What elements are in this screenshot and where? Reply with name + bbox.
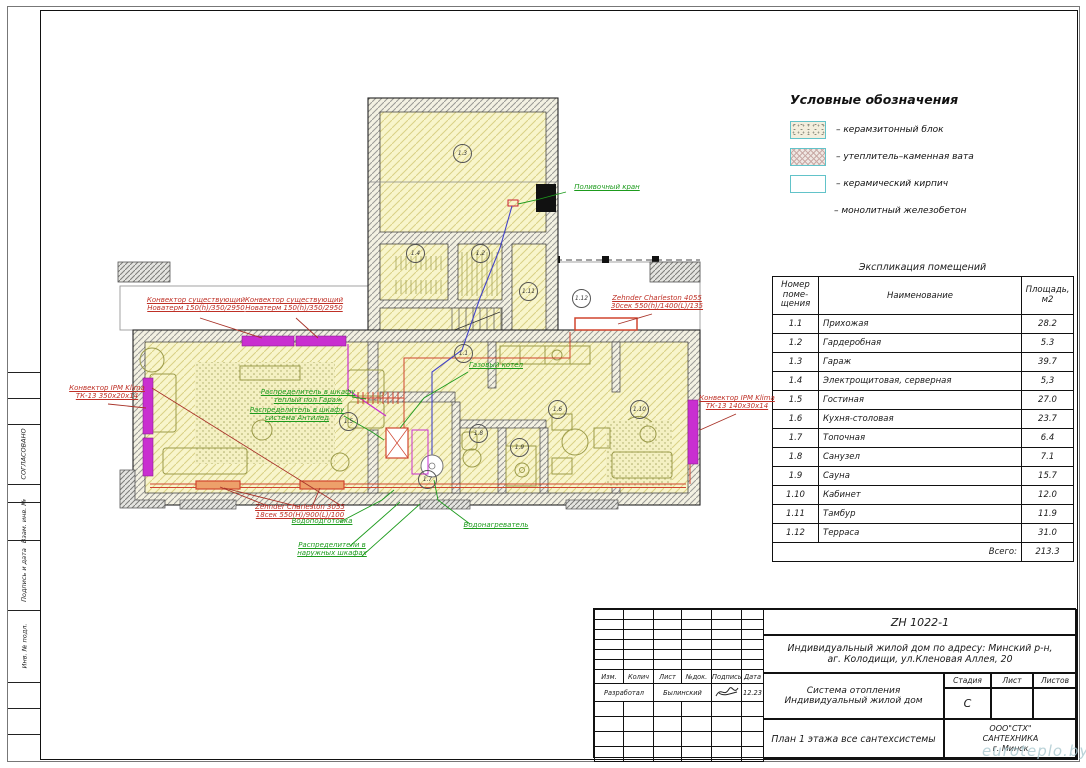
company-line1: ООО"СТХ" [989, 724, 1031, 734]
window-sill [118, 262, 170, 282]
strip-divider [8, 484, 40, 485]
total-value: 213.3 [1022, 543, 1074, 562]
annotation-manifold-antiled: Распределитель в шкафу система Антилед [248, 406, 346, 423]
address-line2: аг. Колодищи, ул.Кленовая Аллея, 20 [827, 654, 1012, 665]
approved-stamp: СОГЛАСОВАНО [8, 424, 40, 484]
date-value: 12.23 [742, 684, 764, 702]
watermark: euroteplo.by [982, 742, 1086, 760]
explication-grid: Номер поме- щения Наименование Площадь, … [772, 276, 1074, 562]
inv-cell: Инв. № подл. [8, 610, 40, 682]
system-name: Система отопления Индивидуальный жилой д… [763, 673, 944, 719]
table-row: 1.4Электрощитовая, серверная5,3 [773, 372, 1074, 391]
room-circle-1-11: 1.11 [519, 282, 538, 301]
legend-item-kirpich: – керамический кирпич [790, 175, 1070, 193]
annotation-convector-existing-1: Конвектор существующий Новатерм 150(h)/3… [146, 296, 246, 313]
annotation-hose-bib: Поливочный кран [564, 183, 650, 191]
col-header-area: Площадь, м2 [1022, 277, 1074, 315]
annotation-manifold-garage: Распределитель в шкафу теплый пол Гараж [260, 388, 356, 405]
room-circle-1-3: 1.3 [453, 144, 472, 163]
strip-divider [8, 682, 40, 683]
legend-item-zhelezobeton: – монолитный железобетон [790, 202, 1070, 220]
podpis-label: Подпись и дата [20, 548, 28, 602]
developer-row: Разработал Былинский 12.23 [595, 684, 764, 702]
room-circle-1-8: 1.8 [469, 424, 488, 443]
room-circle-1-9: 1.9 [510, 438, 529, 457]
legend-label: – утеплитель–каменная вата [836, 152, 974, 162]
annotation-water-treatment: Водоподготовка [280, 517, 364, 525]
title-block-revision-grid: Изм. Колич Лист №док. Подпись Дата Разра… [594, 609, 764, 762]
table-row: 1.11Тамбур11.9 [773, 505, 1074, 524]
stage-value: С [944, 688, 991, 719]
keramzit-swatch [790, 121, 826, 139]
legend-label: – монолитный железобетон [834, 206, 967, 216]
title-block: Изм. Колич Лист №док. Подпись Дата Разра… [593, 608, 1076, 758]
annotation-convector-ipm-left: Конвектор IPM Klima ТК-13 350х20х14 [58, 384, 156, 401]
annotation-convector-existing-2: Конвектор существующий Новатерм 150(h)/3… [244, 296, 344, 313]
table-row: 1.1Прихожая28.2 [773, 315, 1074, 334]
sheet-title: План 1 этажа все сантехсистемы [763, 719, 944, 759]
total-label: Всего: [773, 543, 1022, 562]
window-sill [420, 500, 470, 509]
sheet-value [991, 688, 1033, 719]
explication-title: Экспликация помещений [772, 262, 1073, 273]
table-row: 1.9Сауна15.7 [773, 467, 1074, 486]
vzam-label: Взам. инв. № [20, 499, 28, 543]
table-row: 1.12Терраса31.0 [773, 524, 1074, 543]
strip-divider [8, 734, 40, 735]
annotation-gas-boiler: Газовый котел [456, 361, 536, 369]
annotation-zehnder-4055: Zehnder Charleston 4055 30сек 550(h)/140… [606, 294, 708, 311]
developer-name: Былинский [654, 684, 712, 702]
sheet-label: Лист [991, 673, 1033, 688]
table-row: 1.8Санузел7.1 [773, 448, 1074, 467]
radiator-zehnder-3055 [300, 481, 344, 489]
zhelezobeton-swatch [790, 203, 824, 219]
annotation-convector-ipm-right: Конвектор IPM Klima ТК-13 140х30х14 [698, 394, 776, 411]
sheets-label: Листов [1033, 673, 1077, 688]
strip-divider [8, 372, 40, 373]
sheets-value [1033, 688, 1077, 719]
revision-header-row: Изм. Колич Лист №док. Подпись Дата [595, 670, 764, 684]
inv-label: Инв. № подл. [20, 624, 28, 669]
legend-item-keramzit: – керамзитонный блок [790, 121, 1070, 139]
table-row: 1.3Гараж39.7 [773, 353, 1074, 372]
window-sill [566, 500, 618, 509]
radiator-zehnder-4055 [575, 318, 637, 330]
garage-floor [380, 112, 546, 232]
explication-table: Экспликация помещений Номер поме- щения … [772, 262, 1073, 562]
table-row: 1.10Кабинет12.0 [773, 486, 1074, 505]
window-sill [650, 262, 700, 282]
room-circle-1-12: 1.12 [572, 289, 591, 308]
legend-label: – керамзитонный блок [836, 125, 944, 135]
system-line2: Индивидуальный жилой дом [784, 696, 922, 706]
legend-title: Условные обозначения [790, 92, 1070, 107]
legend: Условные обозначения – керамзитонный бло… [790, 92, 1070, 229]
canopy-post [602, 256, 609, 263]
doc-number: ZH 1022-1 [763, 609, 1077, 635]
kirpich-swatch [790, 175, 826, 193]
table-row: 1.5Гостиная27.0 [773, 391, 1074, 410]
system-line1: Система отопления [807, 686, 901, 696]
room-circle-1-7: 1.7 [418, 470, 437, 489]
podpis-cell: Подпись и дата [8, 540, 40, 610]
drawing-sheet: { "legend": { "title": "Условные обознач… [0, 0, 1086, 768]
floor-plan [50, 85, 790, 585]
room-circle-1-2: 1.2 [471, 244, 490, 263]
legend-label: – керамический кирпич [836, 179, 948, 189]
table-row: 1.2Гардеробная5.3 [773, 334, 1074, 353]
room-circle-1-10: 1.10 [630, 400, 649, 419]
address-line1: Индивидуальный жилой дом по адресу: Минс… [788, 643, 1053, 654]
col-header-name: Наименование [819, 277, 1022, 315]
strip-divider [8, 398, 40, 399]
table-total-row: Всего: 213.3 [773, 543, 1074, 562]
annotation-water-heater: Водонагреватель [450, 521, 542, 529]
room-circle-1-6: 1.6 [548, 400, 567, 419]
approved-label: СОГЛАСОВАНО [20, 428, 28, 479]
developed-label: Разработал [595, 684, 654, 702]
signature-glyph [712, 684, 742, 702]
stage-label: Стадия [944, 673, 991, 688]
vzam-cell: Взам. инв. № [8, 502, 40, 540]
annotation-outdoor-manifolds: Распределители в наружных шкафах [284, 541, 380, 558]
room-circle-1-4: 1.4 [406, 244, 425, 263]
project-address: Индивидуальный жилой дом по адресу: Минс… [763, 635, 1077, 673]
uteplitel-swatch [790, 148, 826, 166]
chimney [536, 184, 556, 212]
radiator-zehnder-3055 [196, 481, 240, 489]
table-row: 1.7Топочная6.4 [773, 429, 1074, 448]
window-sill [180, 500, 236, 509]
strip-divider [8, 708, 40, 709]
legend-item-uteplitel: – утеплитель–каменная вата [790, 148, 1070, 166]
table-row: 1.6Кухня-столовая23.7 [773, 410, 1074, 429]
